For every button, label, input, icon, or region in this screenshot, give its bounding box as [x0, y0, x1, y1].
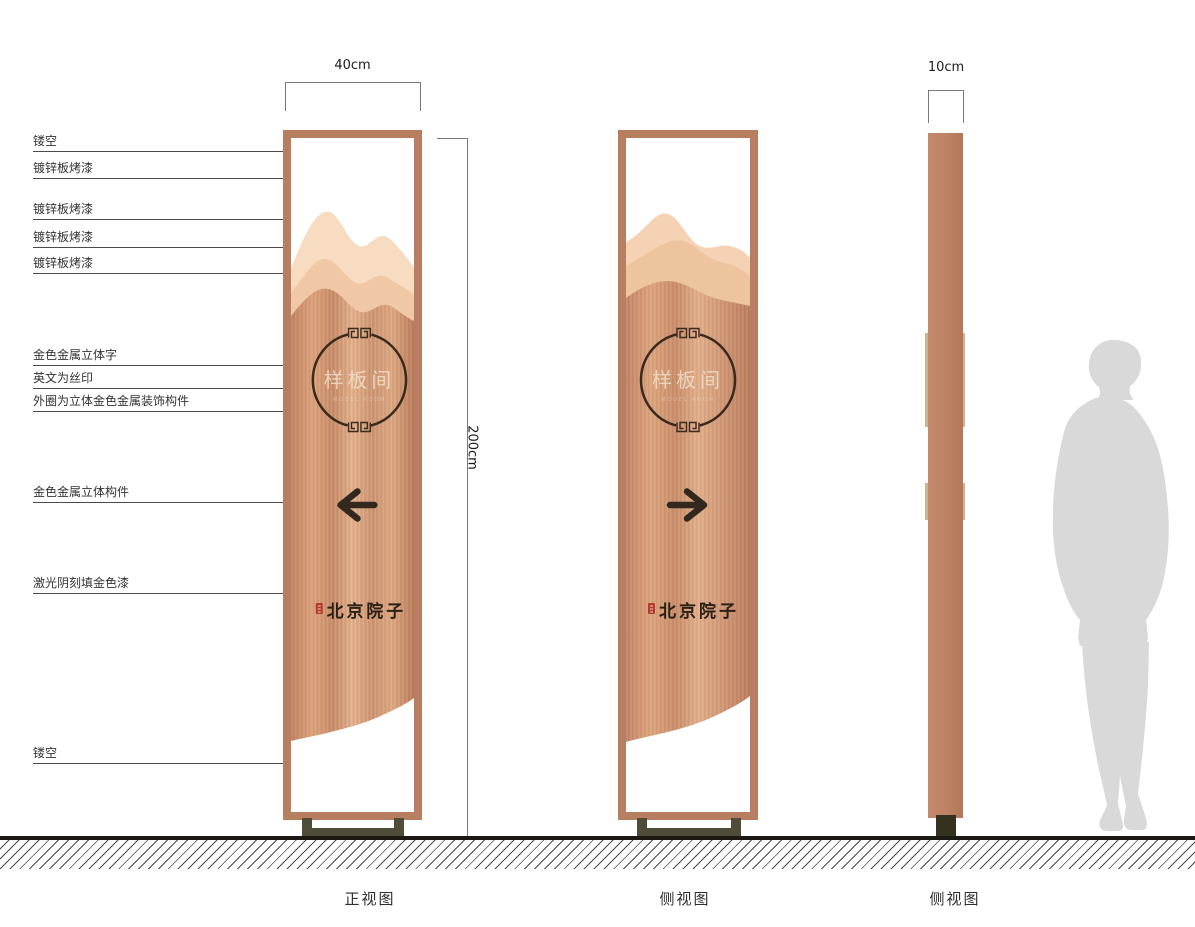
side-view-artwork: 样板间 MODEL ROOM 北京院子: [626, 138, 750, 812]
person-torso: [1053, 397, 1169, 646]
caption-side-view: 侧视图: [615, 888, 755, 909]
dimension-side-width-bracket: [928, 90, 964, 123]
annotation-label: 镀锌板烤漆: [33, 161, 93, 175]
annotation-label: 镀锌板烤漆: [33, 230, 93, 244]
dimension-front-width-bracket: [285, 82, 421, 111]
circle-title-text: 样板间: [324, 369, 395, 392]
annotation-label: 镂空: [33, 746, 57, 760]
dimension-height-line: [467, 138, 468, 838]
annotation-label: 镂空: [33, 134, 57, 148]
front-view-artwork: 样板间 MODEL ROOM 北京院子: [291, 138, 414, 812]
side-view-panel: 样板间 MODEL ROOM 北京院子: [618, 130, 758, 820]
caption-side-view-2: 侧视图: [885, 888, 1025, 909]
circle-title-text: 样板间: [652, 368, 724, 392]
annotation-label: 镀锌板烤漆: [33, 202, 93, 216]
ground-line: [0, 836, 1195, 840]
dimension-height: 200cm: [465, 418, 480, 478]
ground-hatch: [0, 840, 1195, 869]
annotation-label: 外圈为立体金色金属装饰构件: [33, 394, 189, 408]
annotation-outer-ring: 外圈为立体金色金属装饰构件: [33, 394, 318, 412]
annotation-galvanized-4: 镀锌板烤漆: [33, 256, 292, 274]
annotation-hollow-bottom: 镂空: [33, 746, 302, 764]
brand-logo: 北京院子: [648, 601, 739, 622]
dimension-front-width: 40cm: [285, 58, 420, 73]
person-legs: [1082, 642, 1149, 831]
person-silhouette: [1038, 336, 1188, 834]
person-head: [1089, 340, 1141, 400]
side-profile-foot: [936, 815, 956, 838]
annotation-label: 金色金属立体字: [33, 348, 117, 362]
side-profile-panel: [928, 133, 963, 818]
annotation-hollow-top: 镂空: [33, 134, 305, 152]
brand-logo-text: 北京院子: [659, 601, 739, 622]
circle-subtitle-text: MODEL ROOM: [333, 397, 386, 403]
front-view-panel: 样板间 MODEL ROOM 北京院子: [283, 130, 422, 820]
brand-logo: 北京院子: [316, 601, 406, 621]
annotation-laser-engrave: 激光阴刻填金色漆: [33, 576, 310, 594]
annotation-galvanized-2: 镀锌板烤漆: [33, 202, 325, 220]
caption-front-view: 正视图: [300, 888, 440, 909]
dimension-height-tick: [437, 138, 467, 139]
annotation-galvanized-1: 镀锌板烤漆: [33, 161, 283, 179]
annotation-label: 英文为丝印: [33, 371, 93, 385]
dimension-side-width: 10cm: [910, 60, 982, 75]
brand-logo-text: 北京院子: [327, 601, 406, 621]
signage-spec-drawing: 镂空 镀锌板烤漆 镀锌板烤漆 镀锌板烤漆 镀锌板烤漆 金色金属立体字 英文为丝印…: [0, 0, 1195, 927]
annotation-label: 镀锌板烤漆: [33, 256, 93, 270]
annotation-label: 激光阴刻填金色漆: [33, 576, 129, 590]
annotation-label: 金色金属立体构件: [33, 485, 129, 499]
copper-body-brush-texture: [626, 281, 750, 742]
circle-subtitle-text: MODEL ROOM: [661, 397, 715, 403]
annotation-galvanized-3: 镀锌板烤漆: [33, 230, 290, 248]
